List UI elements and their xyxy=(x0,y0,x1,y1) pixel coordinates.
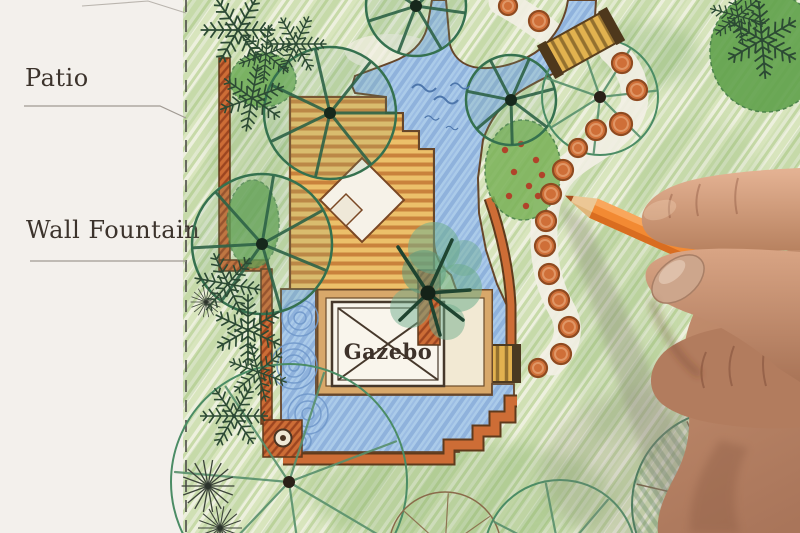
patio-label: Patio xyxy=(25,64,89,92)
stepping-stone xyxy=(569,139,587,157)
gazebo-label: Gazebo xyxy=(344,339,433,364)
wall-fountain-label: Wall Fountain xyxy=(26,216,200,244)
photo-of-landscape-plan: Patio Wall Fountain xyxy=(0,0,800,533)
stepping-stone xyxy=(499,0,517,15)
landscape-plan-drawing: Patio Wall Fountain xyxy=(0,0,800,533)
stepping-stone xyxy=(529,359,547,377)
